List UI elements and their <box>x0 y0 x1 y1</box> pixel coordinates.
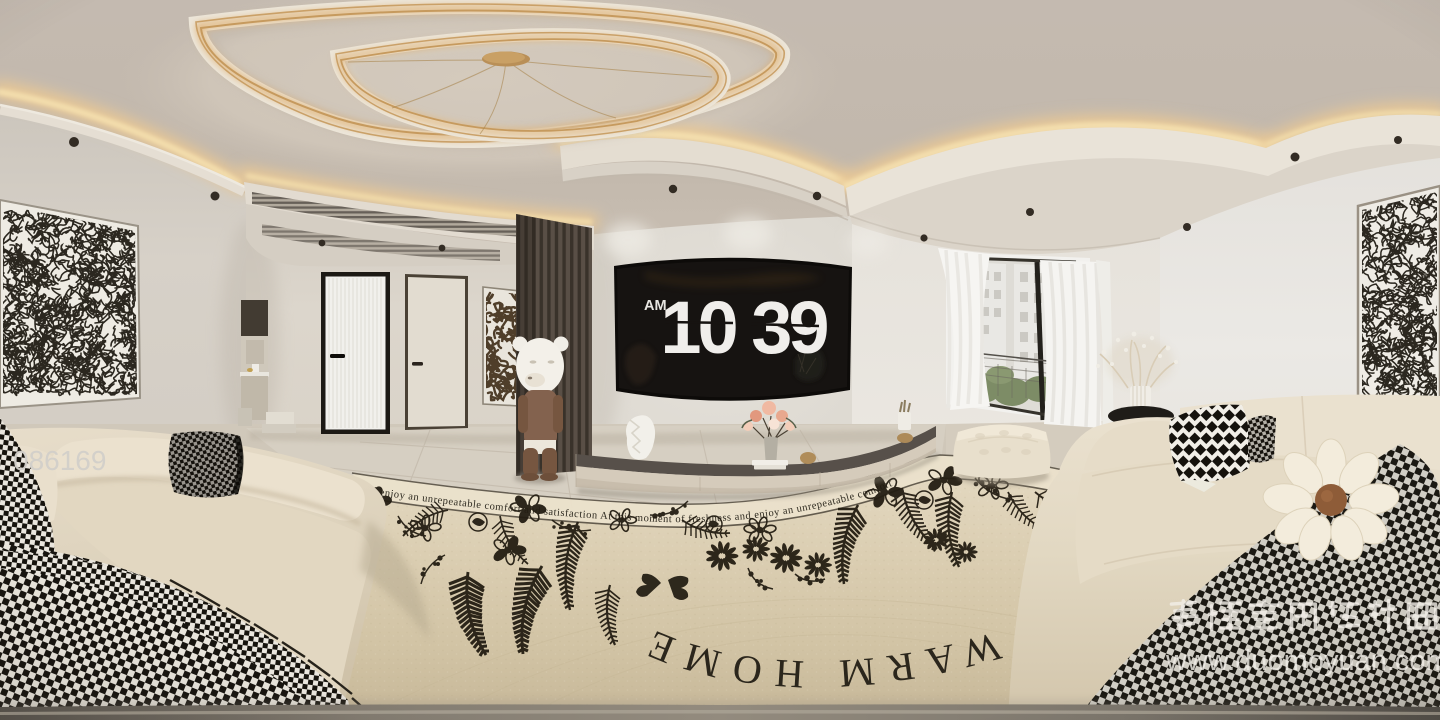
svg-text:www.duomoyuan.com: www.duomoyuan.com <box>1165 645 1440 677</box>
svg-text:086169: 086169 <box>13 445 106 476</box>
